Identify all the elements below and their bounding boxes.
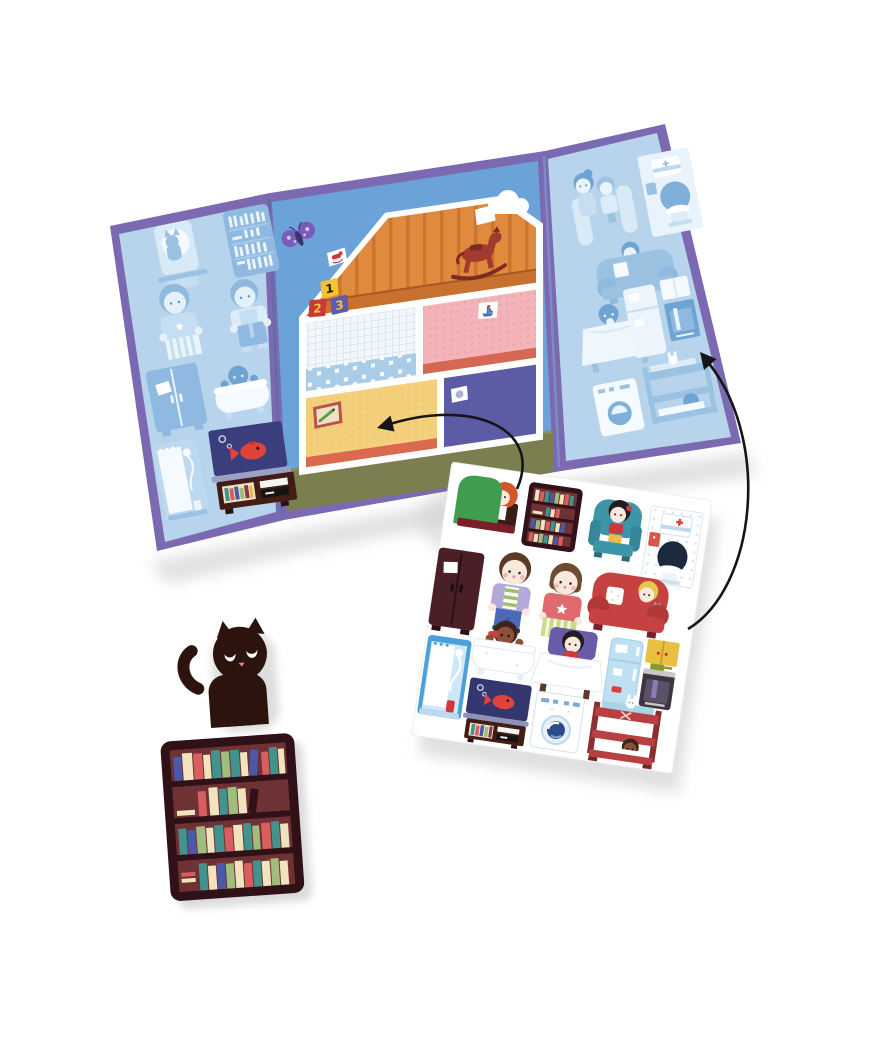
sticker-fish-tank-cabinet: [459, 677, 534, 750]
sticker-sheet: [412, 462, 712, 773]
block-3-numeral: 3: [335, 298, 344, 314]
bookshelf-large-sticker: [160, 733, 305, 902]
black-cat-sticker: [180, 617, 272, 730]
room-purple-bedroom: [444, 365, 536, 447]
product-photo-sticker-playset: 1 2 3: [0, 0, 880, 1038]
sailboat-mini-sticker: [478, 302, 498, 320]
sticker-toilet-corner: [641, 506, 704, 589]
block-2-numeral: 2: [313, 301, 322, 316]
block-1-numeral: 1: [325, 281, 335, 297]
scene: 1 2 3: [0, 0, 880, 1038]
sticker-bookshelf-small: [521, 482, 584, 553]
sticker-washing-machine: [529, 691, 585, 753]
number-block-2: 2: [308, 299, 326, 317]
